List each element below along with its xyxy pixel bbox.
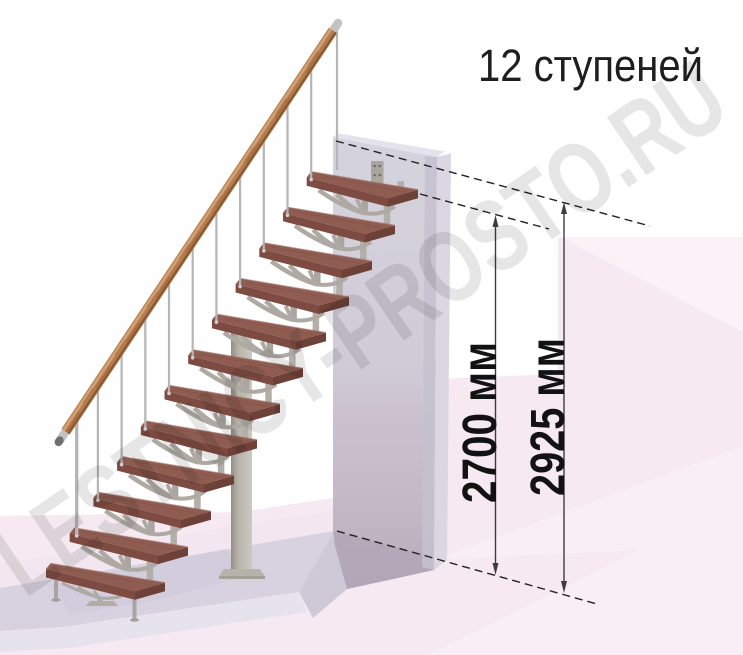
svg-text:2925 мм: 2925 мм xyxy=(522,338,575,496)
svg-text:2700 мм: 2700 мм xyxy=(454,342,507,503)
